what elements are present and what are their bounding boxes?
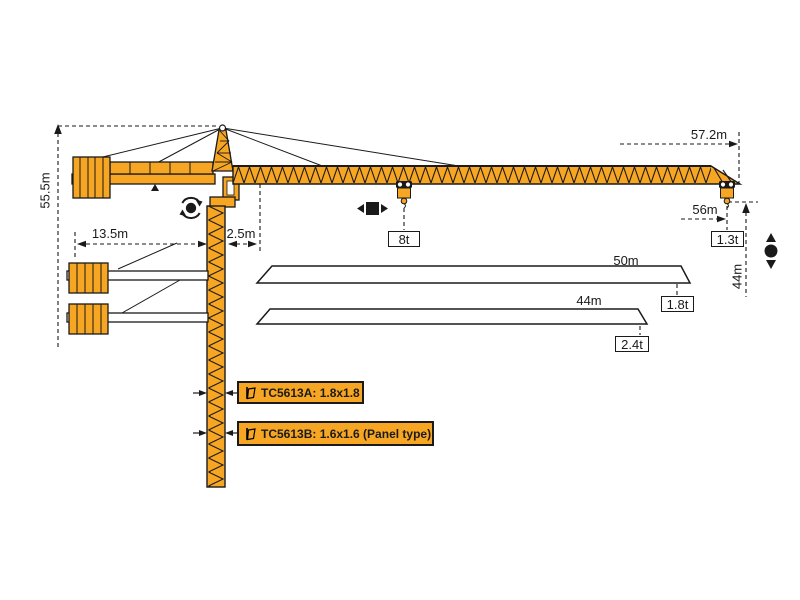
mast-variant-b-label: TC5613B: 1.6x1.6 (Panel type)	[261, 427, 431, 441]
arrow-13-5-right	[198, 241, 207, 247]
crane-diagram-page: 55.5m 13.5m 2.5m 57.2m 56m 44m 50m 44m 8…	[0, 0, 800, 600]
load-box-44m: 2.4t	[615, 336, 649, 352]
arrow-44m-up	[742, 203, 750, 213]
counter-jib-marker	[151, 184, 159, 191]
mast-section-icon	[245, 386, 256, 400]
jib-option-44m-outline	[257, 309, 647, 324]
mast-variant-a-box: TC5613A: 1.8x1.8	[237, 381, 364, 404]
label-counter-jib-radius: 13.5m	[85, 226, 135, 241]
ballast-option-2	[67, 304, 208, 334]
tower-head	[212, 130, 233, 171]
counterweight-block	[73, 157, 110, 198]
label-hook-height: 44m	[730, 257, 745, 297]
tie-rod-jib-far	[223, 128, 465, 167]
load-box-56m: 1.3t	[711, 231, 744, 247]
leader-ballast-1	[118, 243, 177, 269]
counter-jib-platform	[110, 162, 213, 174]
jib-options	[257, 266, 690, 324]
tie-rod-counterjib-near	[155, 128, 222, 164]
arrow-2-5-right	[248, 241, 257, 247]
hoist-up-down-icon	[765, 233, 778, 269]
label-jib-option-44m: 44m	[569, 293, 609, 308]
leader-ballast-2	[122, 280, 180, 313]
ballast-option-1	[67, 263, 208, 293]
tower-mast	[207, 206, 225, 487]
main-jib	[233, 166, 740, 184]
mast-variant-a-label: TC5613A: 1.8x1.8	[261, 386, 360, 400]
mast-variant-b-box: TC5613B: 1.6x1.6 (Panel type)	[237, 421, 434, 446]
ballast-blocks-2	[69, 304, 108, 334]
label-max-jib-radius: 57.2m	[684, 127, 734, 142]
label-tower-height: 55.5m	[38, 166, 53, 216]
slewing-rotation-icon	[180, 198, 203, 218]
load-box-50m: 1.8t	[661, 296, 694, 312]
load-box-mid-jib: 8t	[388, 231, 420, 247]
label-min-radius: 2.5m	[221, 226, 261, 241]
arrow-2-5-left	[228, 241, 237, 247]
trolley-travel-icon	[357, 202, 388, 215]
tie-rods	[78, 128, 465, 313]
tie-rod-jib-near	[223, 128, 325, 167]
mid-jib-trolley	[396, 181, 412, 208]
arrow-13-5-left	[77, 241, 86, 247]
label-jib-option-50m: 50m	[606, 253, 646, 268]
apex-pin	[220, 125, 226, 131]
tip-hook	[724, 198, 730, 204]
mid-hook	[401, 198, 407, 204]
label-max-hook-radius: 56m	[687, 202, 723, 217]
jib-option-50m-outline	[257, 266, 690, 283]
counter-jib	[72, 157, 215, 198]
mast-section-icon	[245, 427, 256, 441]
ballast-blocks-1	[69, 263, 108, 293]
